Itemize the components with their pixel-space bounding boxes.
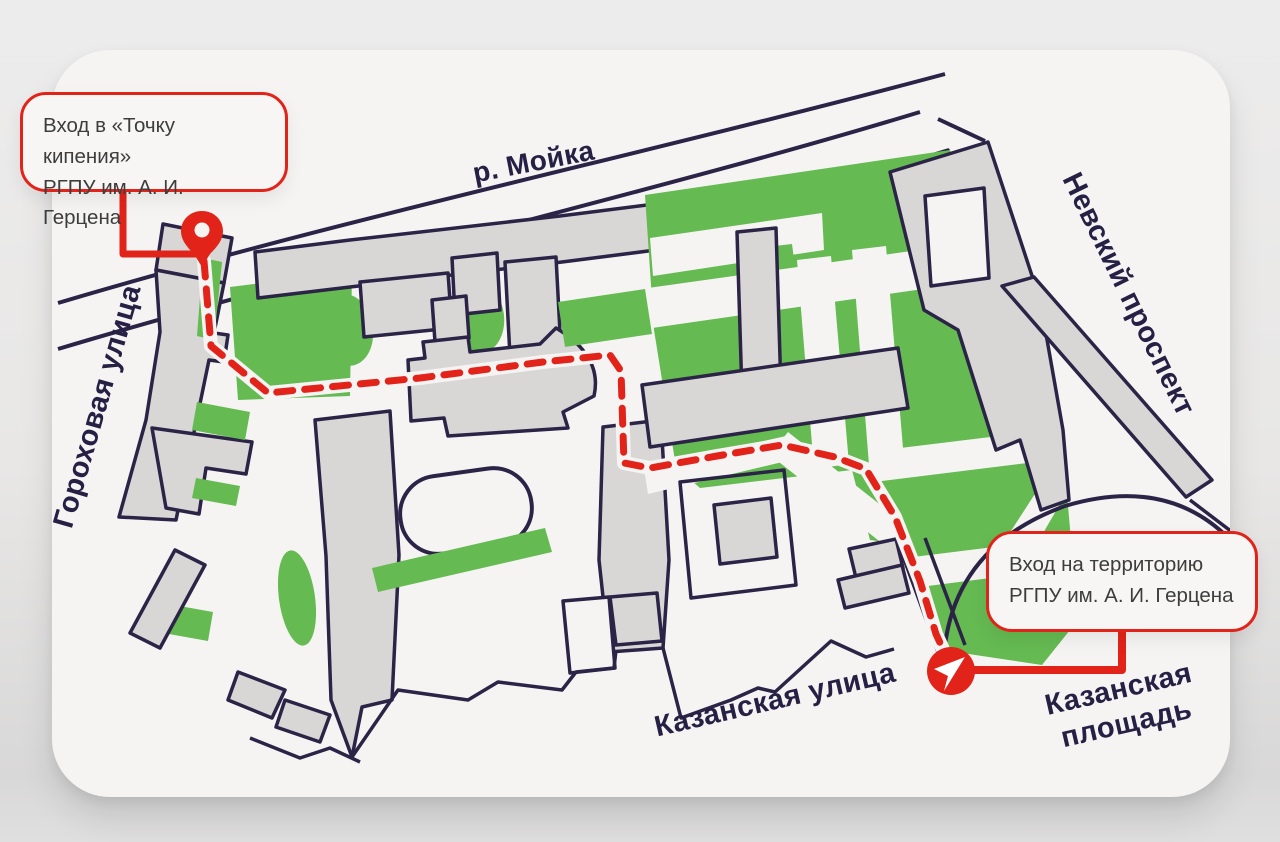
callout-boiling-point-entrance: Вход в «Точку кипения» РГПУ им. А. И. Ге… <box>20 92 288 192</box>
buildings-street-south <box>838 539 909 608</box>
destination-marker <box>927 647 975 695</box>
callout-line: РГПУ им. А. И. Герцена <box>1009 581 1235 612</box>
callout-line: РГПУ им. А. И. Герцена <box>43 173 265 235</box>
callout-line: Вход на территорию <box>1009 550 1235 581</box>
buildings-center <box>408 296 669 673</box>
campus-map-page: р. Мойка Гороховая улица Невский проспек… <box>0 0 1280 842</box>
callout-line: Вход в «Точку кипения» <box>43 111 265 173</box>
callout-territory-entrance: Вход на территорию РГПУ им. А. И. Герцен… <box>986 531 1258 632</box>
